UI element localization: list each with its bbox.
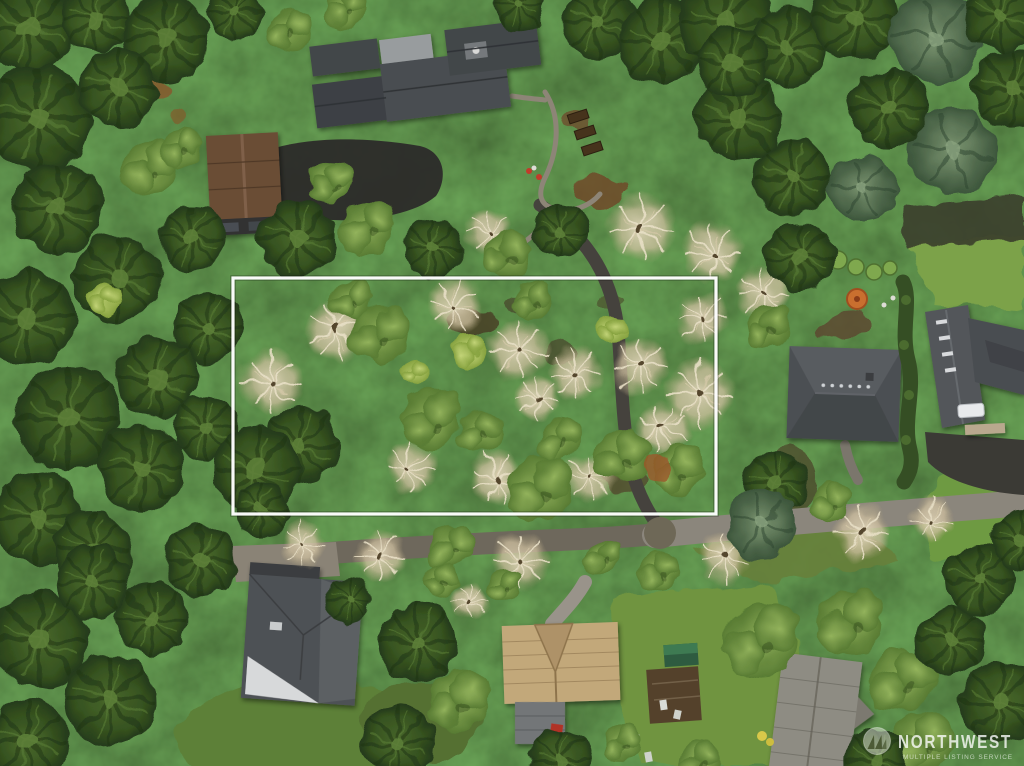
rust-tree — [644, 454, 672, 482]
green-shed — [663, 643, 698, 667]
aerial-photo: NORTHWEST MULTIPLE LISTING SERVICE — [0, 0, 1024, 766]
front-walk — [965, 423, 1005, 435]
white-car — [958, 403, 985, 418]
red-patio-chair — [536, 174, 542, 180]
watermark-tagline: MULTIPLE LISTING SERVICE — [903, 754, 1013, 761]
house-right-hip-roof — [786, 346, 901, 442]
watermark-brand: NORTHWEST — [898, 732, 1012, 752]
watermark-badge — [864, 728, 891, 755]
road-junction — [644, 517, 676, 549]
red-patio-chair — [526, 168, 532, 174]
screenshot: NORTHWEST MULTIPLE LISTING SERVICE — [0, 0, 1024, 766]
mulch-top-house — [574, 174, 626, 206]
rust-patch-top-left — [168, 109, 188, 123]
patio-table — [532, 166, 537, 171]
